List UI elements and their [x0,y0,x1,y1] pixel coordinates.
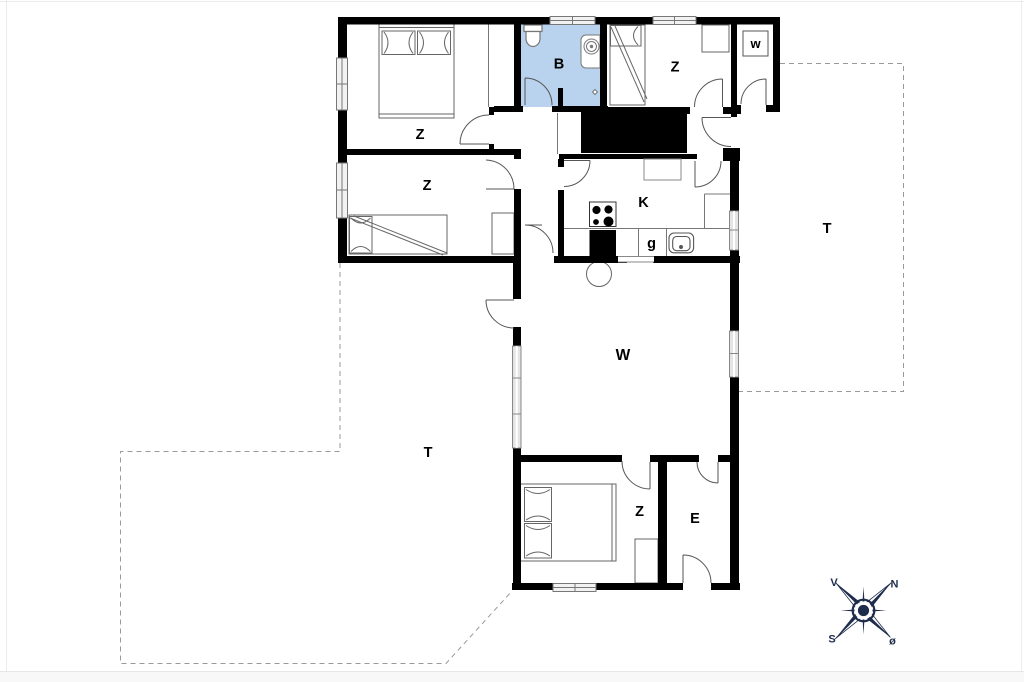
svg-text:Z: Z [416,127,425,143]
svg-text:g: g [647,236,656,252]
svg-text:E: E [690,511,700,527]
svg-text:B: B [554,57,564,73]
svg-text:T: T [823,221,832,237]
svg-text:T: T [424,445,433,461]
svg-text:Z: Z [423,178,432,194]
svg-text:ø: ø [889,636,896,648]
svg-text:S: S [828,634,835,646]
svg-text:Z: Z [671,60,680,76]
svg-text:w: w [749,36,761,51]
svg-text:K: K [638,195,649,211]
svg-text:N: N [891,579,899,591]
svg-text:W: W [616,347,631,364]
svg-text:Z: Z [635,504,644,520]
svg-text:V: V [830,577,838,589]
